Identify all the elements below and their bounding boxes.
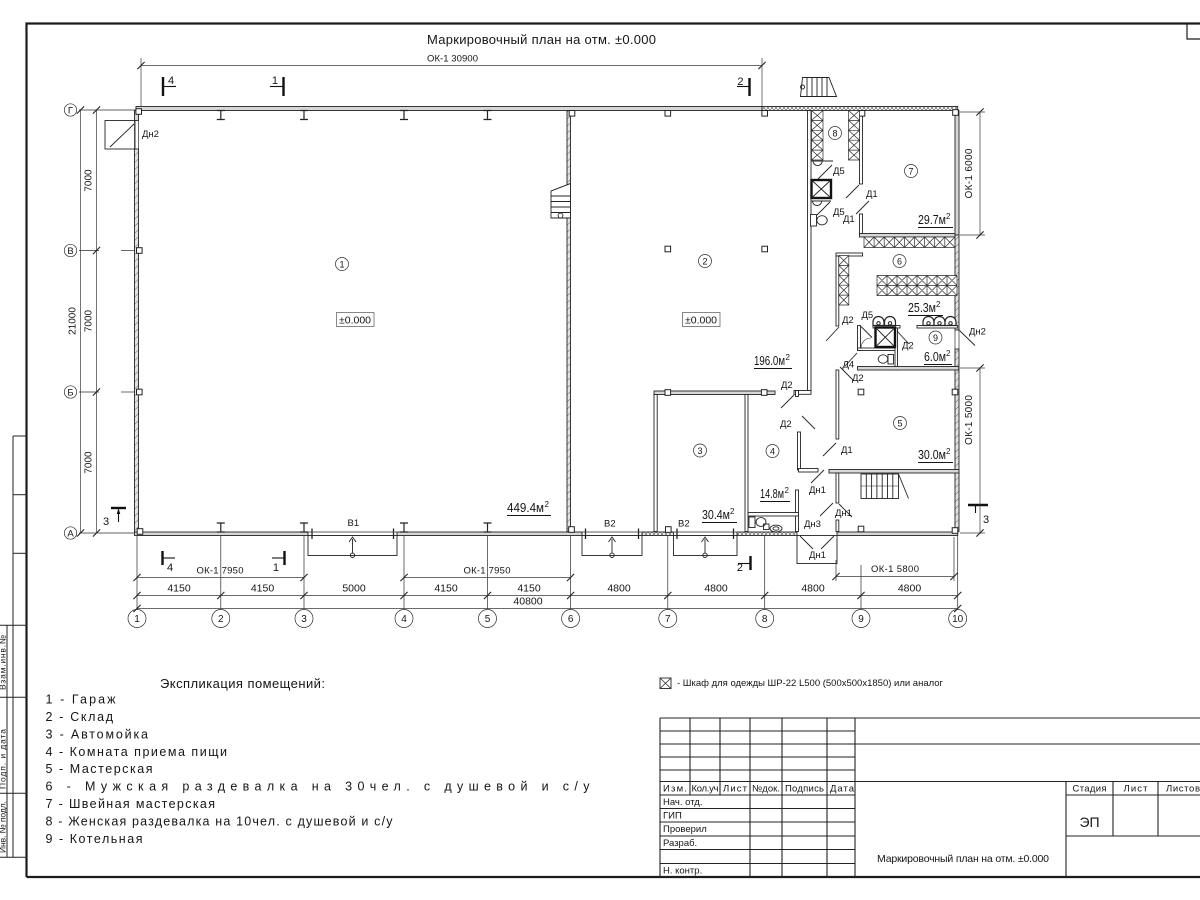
svg-text:Д4: Д4 [843,360,855,371]
svg-text:Инв. № подл.: Инв. № подл. [0,801,8,853]
svg-text:6.0м: 6.0м [924,350,946,364]
svg-text:196.0м: 196.0м [754,354,785,368]
svg-text:3: 3 [983,514,989,526]
svg-text:Д2: Д2 [902,341,914,352]
svg-text:6: 6 [897,257,902,267]
svg-text:2: 2 [702,257,707,267]
svg-text:8 - Женская раздевалка на 10че: 8 - Женская раздевалка на 10чел. с душев… [46,814,394,828]
svg-text:В: В [67,246,73,257]
svg-text:Подп. и дата: Подп. и дата [0,729,8,789]
svg-text:4150: 4150 [251,583,275,595]
svg-text:1: 1 [339,260,344,270]
svg-text:2: 2 [730,507,735,516]
svg-text:7000: 7000 [84,451,95,474]
svg-text:21000: 21000 [68,307,79,335]
svg-text:2: 2 [545,500,550,509]
svg-text:Б: Б [67,387,73,398]
svg-text:Дн3: Дн3 [804,519,821,530]
svg-text:Экспликация помещений:: Экспликация помещений: [160,676,325,691]
svg-text:4150: 4150 [167,583,191,595]
svg-text:40800: 40800 [513,596,542,608]
svg-text:Дн1: Дн1 [809,550,826,561]
svg-text:4150: 4150 [517,583,541,595]
svg-text:3: 3 [697,446,702,456]
svg-text:В1: В1 [348,518,360,529]
svg-text:2: 2 [786,353,791,362]
svg-text:4800: 4800 [704,583,728,595]
svg-text:Листов: Листов [1166,784,1200,795]
svg-text:2: 2 [936,300,941,309]
svg-text:ОК-1 6000: ОК-1 6000 [964,148,975,198]
svg-text:ЭП: ЭП [1079,814,1099,830]
svg-text:Маркировочный план на отм. ±0.: Маркировочный план на отм. ±0.000 [877,853,1049,865]
svg-text:7: 7 [908,167,913,177]
svg-text:4800: 4800 [607,583,631,595]
svg-text:1: 1 [273,562,279,574]
svg-text:Н. контр.: Н. контр. [663,866,702,877]
svg-text:Дн1: Дн1 [835,508,852,519]
svg-text:1: 1 [272,75,278,87]
svg-text:7: 7 [665,614,671,625]
svg-text:Разраб.: Разраб. [663,838,697,849]
svg-text:4: 4 [167,562,173,574]
svg-text:В2: В2 [604,519,616,530]
svg-text:30.0м: 30.0м [918,448,946,462]
svg-text:ОК-1 5800: ОК-1 5800 [871,564,919,575]
svg-text:9 - Котельная: 9 - Котельная [46,832,143,846]
svg-text:Д2: Д2 [852,373,864,384]
svg-text:Д1: Д1 [866,189,878,200]
svg-text:2: 2 [946,447,951,456]
svg-text:2: 2 [946,212,951,221]
svg-text:Проверил: Проверил [663,824,707,835]
svg-text:Д2: Д2 [781,380,793,391]
svg-text:ОК-1 7950: ОК-1 7950 [464,566,511,577]
svg-text:4 - Комната приема пищи: 4 - Комната приема пищи [46,745,228,759]
svg-text:14.8м: 14.8м [760,487,784,501]
svg-text:9: 9 [858,614,864,625]
svg-text:5 - Мастерская: 5 - Мастерская [46,762,153,776]
svg-text:29.7м: 29.7м [918,213,946,227]
svg-text:25.3м: 25.3м [908,301,936,315]
svg-text:2: 2 [946,349,951,358]
svg-text:8: 8 [832,129,837,139]
svg-text:- Шкаф для одежды ШР-22 L500 (: - Шкаф для одежды ШР-22 L500 (500х500х18… [677,678,944,689]
svg-text:4: 4 [770,447,775,457]
svg-text:449.4м: 449.4м [507,501,544,515]
svg-text:8: 8 [762,614,768,625]
svg-text:Лист: Лист [1124,784,1149,795]
svg-text:Д2: Д2 [842,315,854,326]
svg-text:4800: 4800 [801,583,825,595]
svg-text:Д1: Д1 [843,214,855,225]
svg-text:1: 1 [134,614,140,625]
svg-text:В2: В2 [678,519,690,530]
svg-text:ОК-1 7950: ОК-1 7950 [197,566,244,577]
svg-text:Дн2: Дн2 [142,129,159,140]
svg-text:±0.000: ±0.000 [339,315,371,327]
svg-text:Д1: Д1 [841,445,853,456]
svg-text:4: 4 [168,75,174,87]
svg-text:10: 10 [952,614,964,625]
svg-text:6 - Мужская раздевалка на 30че: 6 - Мужская раздевалка на 30чел. с душев… [46,780,591,794]
svg-text:4: 4 [401,614,407,625]
svg-text:4800: 4800 [898,583,922,595]
svg-text:Д2: Д2 [780,419,792,430]
svg-text:5000: 5000 [342,583,366,595]
svg-text:Кол.уч: Кол.уч [692,784,719,795]
svg-text:2: 2 [218,614,224,625]
svg-text:±0.000: ±0.000 [685,315,717,327]
svg-text:Д5: Д5 [833,166,845,177]
svg-text:7 - Швейная мастерская: 7 - Швейная мастерская [46,797,216,811]
svg-text:ГИП: ГИП [663,811,682,822]
svg-text:Нач. отд.: Нач. отд. [663,797,702,808]
svg-text:Стадия: Стадия [1073,784,1107,795]
svg-text:3: 3 [301,614,307,625]
svg-text:30.4м: 30.4м [702,508,730,522]
svg-text:2: 2 [785,486,790,495]
svg-text:ОК-1 30900: ОК-1 30900 [427,54,478,65]
svg-text:Подпись: Подпись [785,784,824,795]
svg-text:7000: 7000 [84,309,95,332]
svg-text:3: 3 [103,516,109,528]
svg-text:Д5: Д5 [862,310,874,321]
svg-text:Маркировочный план на отм. ±0.: Маркировочный план на отм. ±0.000 [427,32,656,47]
svg-text:4150: 4150 [434,583,458,595]
svg-text:№док.: №док. [752,784,780,795]
svg-text:2: 2 [737,76,743,88]
svg-text:Г: Г [68,105,73,116]
svg-text:Лист: Лист [723,784,748,795]
svg-text:6: 6 [568,614,574,625]
svg-text:А: А [67,528,74,539]
svg-text:3 - Автомойка: 3 - Автомойка [46,727,149,741]
svg-text:Изм.: Изм. [663,784,687,795]
svg-text:Дата: Дата [830,784,855,795]
svg-text:Дн1: Дн1 [809,485,826,496]
svg-text:7000: 7000 [84,169,95,192]
svg-text:2: 2 [737,562,743,574]
svg-text:5: 5 [897,419,902,429]
svg-text:9: 9 [933,333,938,343]
svg-text:Дн2: Дн2 [969,327,986,338]
svg-text:5: 5 [485,614,491,625]
svg-text:ОК-1 5000: ОК-1 5000 [964,395,975,445]
svg-text:Взам.инв.№: Взам.инв.№ [0,635,8,690]
